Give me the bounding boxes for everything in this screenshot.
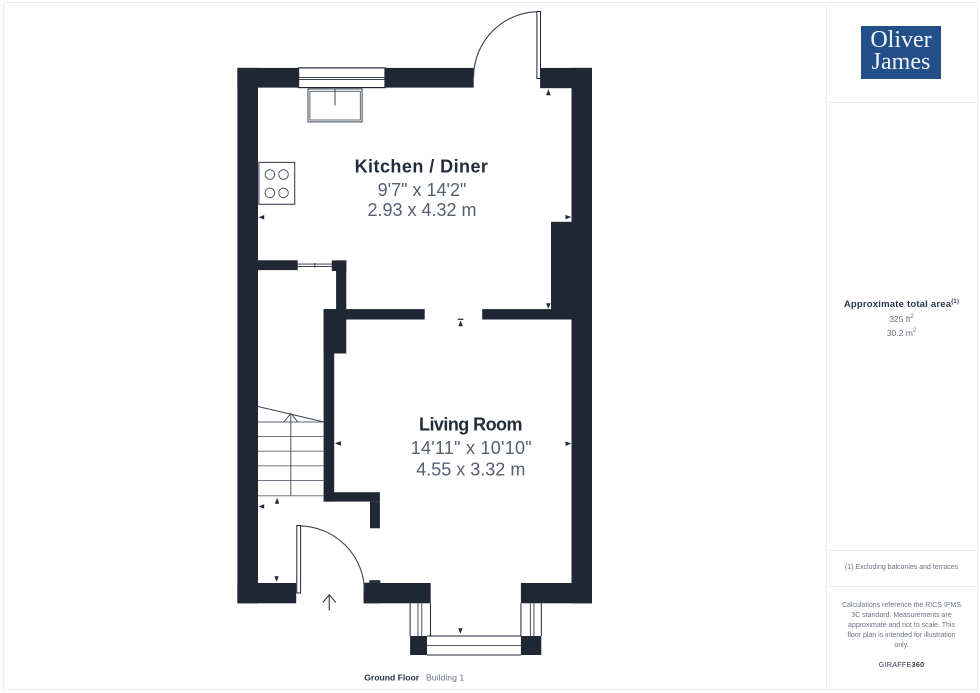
svg-text:14'11" x 10'10": 14'11" x 10'10" <box>411 438 532 458</box>
svg-text:4.55 x 3.32 m: 4.55 x 3.32 m <box>416 459 525 479</box>
svg-text:Living Room: Living Room <box>419 415 522 435</box>
svg-text:Kitchen / Diner: Kitchen / Diner <box>355 157 489 177</box>
svg-text:Ground Floor: Ground Floor <box>364 672 420 682</box>
svg-text:2.93 x 4.32 m: 2.93 x 4.32 m <box>367 200 476 220</box>
svg-text:9'7" x 14'2": 9'7" x 14'2" <box>378 180 467 200</box>
svg-text:Building 1: Building 1 <box>426 672 464 682</box>
